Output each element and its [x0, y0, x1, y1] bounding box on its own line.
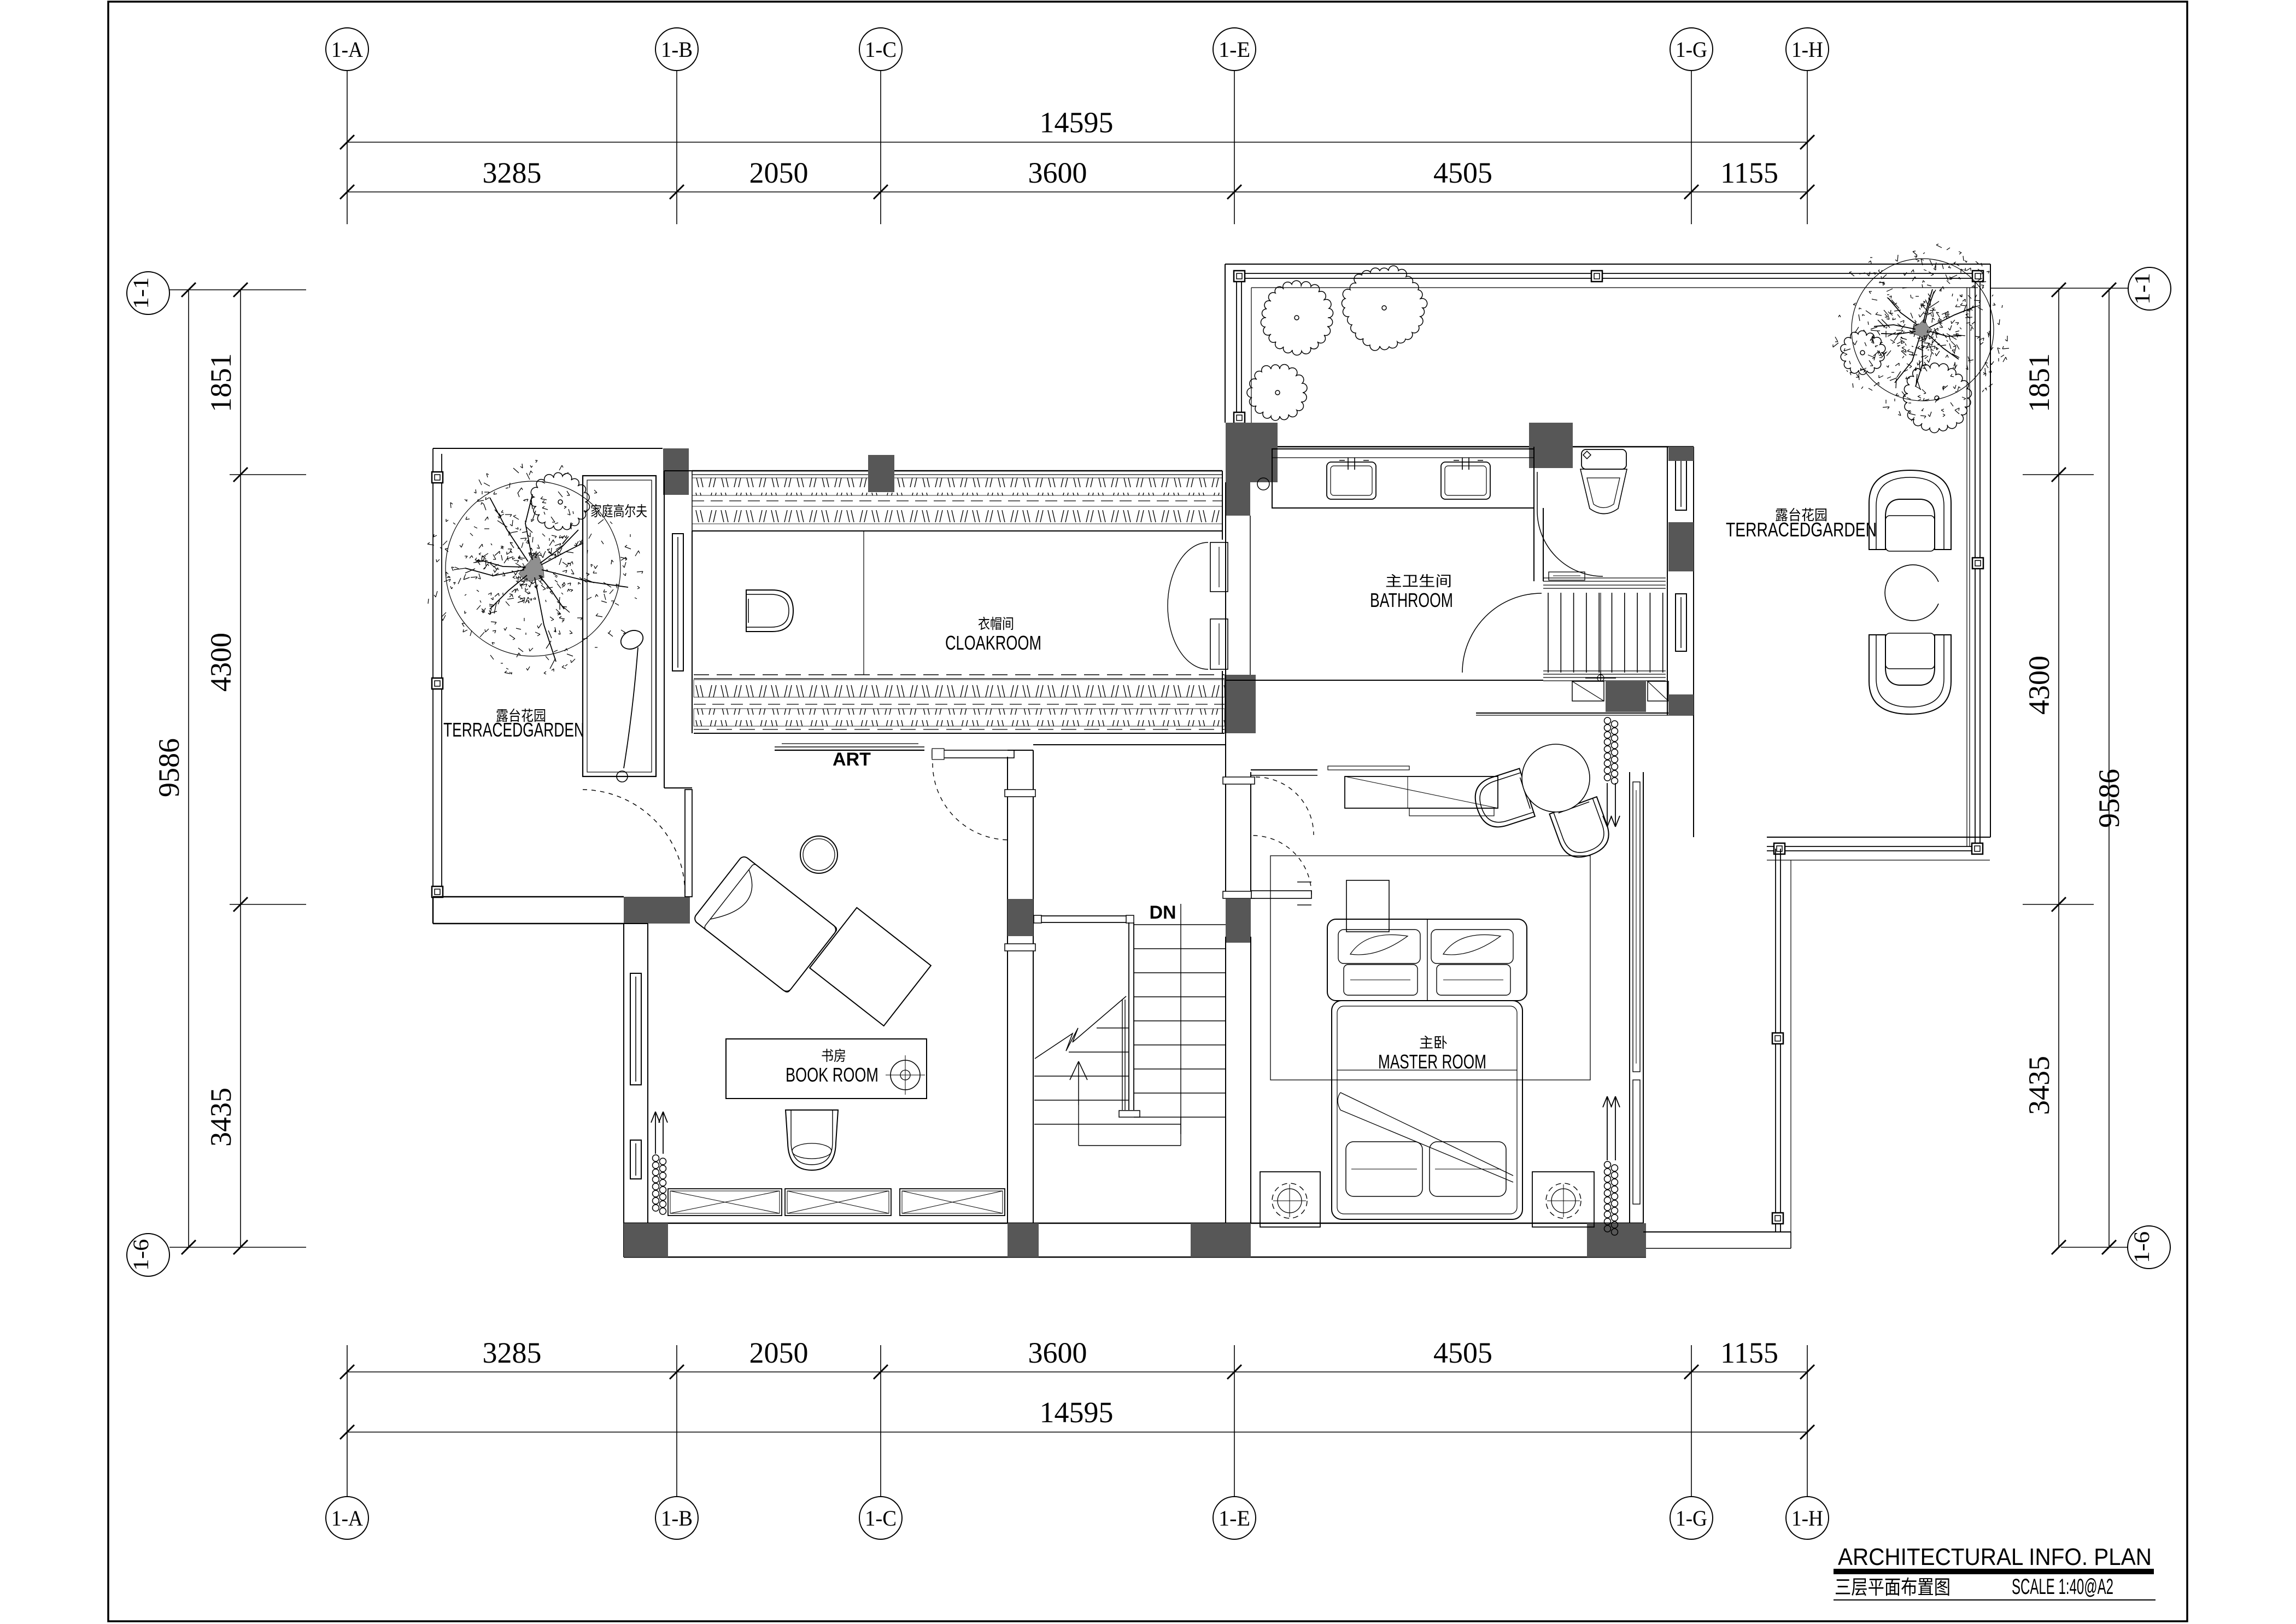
svg-text:9586: 9586	[2093, 769, 2125, 828]
svg-text:4300: 4300	[2023, 656, 2055, 715]
svg-text:ART: ART	[833, 749, 871, 770]
svg-text:9586: 9586	[153, 738, 185, 797]
svg-text:1-1: 1-1	[128, 277, 153, 309]
svg-text:1-A: 1-A	[331, 1506, 363, 1530]
svg-text:4300: 4300	[204, 633, 237, 692]
svg-text:2050: 2050	[749, 156, 809, 189]
svg-text:DN: DN	[1149, 902, 1176, 923]
svg-text:SCALE 1:40@A2: SCALE 1:40@A2	[2012, 1575, 2113, 1599]
svg-text:4505: 4505	[1433, 156, 1492, 189]
svg-text:3285: 3285	[483, 156, 542, 189]
svg-text:1-B: 1-B	[661, 37, 693, 62]
svg-text:1-C: 1-C	[865, 37, 897, 62]
svg-text:1-B: 1-B	[661, 1506, 693, 1530]
svg-text:14595: 14595	[1040, 1396, 1114, 1429]
svg-text:家庭高尔夫: 家庭高尔夫	[590, 503, 647, 519]
svg-text:1155: 1155	[1720, 156, 1778, 189]
svg-text:1155: 1155	[1720, 1336, 1778, 1369]
svg-text:3435: 3435	[2023, 1056, 2055, 1115]
svg-text:3285: 3285	[483, 1336, 542, 1369]
svg-text:4505: 4505	[1433, 1336, 1492, 1369]
svg-text:1-C: 1-C	[865, 1506, 897, 1530]
svg-text:3600: 3600	[1028, 156, 1087, 189]
svg-text:2050: 2050	[749, 1336, 809, 1369]
svg-text:1851: 1851	[2023, 353, 2055, 412]
svg-text:3600: 3600	[1028, 1336, 1087, 1369]
svg-text:BATHROOM: BATHROOM	[1370, 589, 1453, 611]
svg-text:1-6: 1-6	[2129, 1231, 2154, 1263]
svg-text:1-6: 1-6	[128, 1239, 153, 1271]
svg-text:TERRACEDGARDEN: TERRACEDGARDEN	[443, 718, 584, 741]
svg-text:1-G: 1-G	[1676, 1506, 1707, 1530]
svg-text:1-1: 1-1	[2130, 273, 2154, 305]
svg-text:TERRACEDGARDEN: TERRACEDGARDEN	[1726, 518, 1877, 541]
svg-text:书房: 书房	[821, 1048, 846, 1064]
svg-text:ARCHITECTURAL INFO. PLAN: ARCHITECTURAL INFO. PLAN	[1838, 1544, 2152, 1570]
svg-text:衣帽间: 衣帽间	[978, 616, 1014, 632]
svg-text:1-H: 1-H	[1791, 37, 1823, 62]
svg-text:3435: 3435	[204, 1088, 237, 1147]
svg-text:1851: 1851	[204, 353, 237, 412]
svg-text:1-A: 1-A	[331, 37, 363, 62]
svg-text:14595: 14595	[1040, 106, 1114, 139]
svg-text:主卫生间: 主卫生间	[1385, 573, 1452, 589]
svg-text:1-G: 1-G	[1676, 37, 1707, 62]
svg-text:主卧: 主卧	[1419, 1035, 1448, 1051]
svg-text:1-E: 1-E	[1219, 37, 1250, 62]
svg-text:MASTER ROOM: MASTER ROOM	[1378, 1050, 1486, 1073]
svg-text:三层平面布置图: 三层平面布置图	[1835, 1576, 1951, 1598]
svg-text:1-E: 1-E	[1219, 1506, 1250, 1530]
svg-text:CLOAKROOM: CLOAKROOM	[945, 632, 1041, 654]
svg-text:1-H: 1-H	[1791, 1506, 1823, 1530]
svg-text:BOOK ROOM: BOOK ROOM	[786, 1064, 878, 1086]
